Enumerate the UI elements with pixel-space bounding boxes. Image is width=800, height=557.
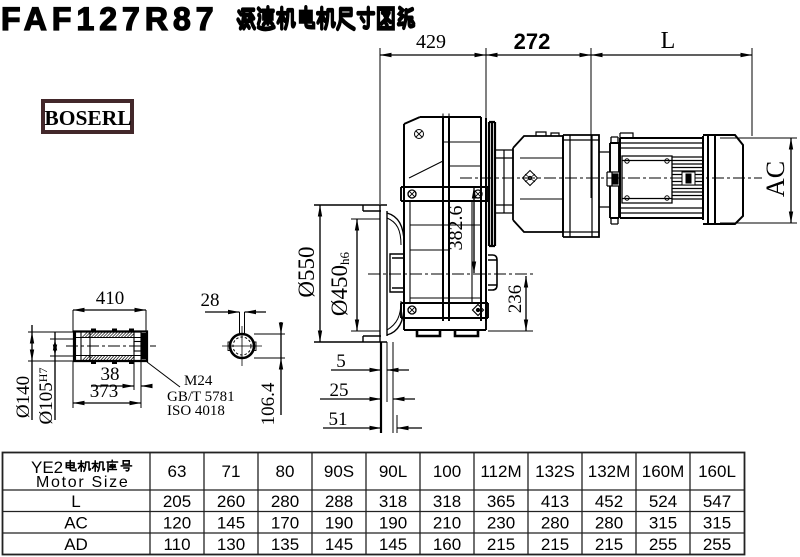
svg-text:215: 215 bbox=[541, 535, 569, 554]
svg-text:160L: 160L bbox=[698, 462, 736, 481]
svg-text:ISO 4018: ISO 4018 bbox=[167, 403, 225, 419]
svg-text:160: 160 bbox=[433, 535, 461, 554]
svg-text:373: 373 bbox=[90, 381, 119, 402]
svg-text:170: 170 bbox=[271, 514, 299, 533]
svg-text:215: 215 bbox=[487, 535, 515, 554]
svg-text:120: 120 bbox=[163, 514, 191, 533]
svg-text:BOSERL: BOSERL bbox=[44, 106, 131, 130]
svg-text:Motor Size: Motor Size bbox=[36, 474, 129, 491]
svg-text:547: 547 bbox=[703, 492, 731, 511]
svg-text:130: 130 bbox=[217, 535, 245, 554]
svg-text:145: 145 bbox=[325, 535, 353, 554]
svg-text:132M: 132M bbox=[588, 462, 631, 481]
svg-text:255: 255 bbox=[649, 535, 677, 554]
svg-text:190: 190 bbox=[379, 514, 407, 533]
svg-text:429: 429 bbox=[416, 31, 446, 53]
svg-text:145: 145 bbox=[217, 514, 245, 533]
svg-text:80: 80 bbox=[276, 462, 295, 481]
svg-text:AC: AC bbox=[64, 514, 88, 533]
svg-text:110: 110 bbox=[163, 535, 190, 554]
svg-text:160M: 160M bbox=[642, 462, 685, 481]
svg-text:280: 280 bbox=[271, 492, 299, 511]
svg-text:63: 63 bbox=[168, 462, 187, 481]
svg-text:410: 410 bbox=[96, 288, 125, 309]
svg-text:452: 452 bbox=[595, 492, 623, 511]
svg-text:280: 280 bbox=[541, 514, 569, 533]
svg-text:FAF127R87: FAF127R87 bbox=[1, 1, 219, 37]
svg-text:280: 280 bbox=[595, 514, 623, 533]
svg-text:255: 255 bbox=[703, 535, 731, 554]
svg-text:205: 205 bbox=[163, 492, 191, 511]
svg-text:318: 318 bbox=[433, 492, 461, 511]
svg-text:M24: M24 bbox=[184, 373, 213, 389]
svg-text:135: 135 bbox=[271, 535, 299, 554]
svg-text:90L: 90L bbox=[379, 462, 407, 481]
svg-text:90S: 90S bbox=[324, 462, 354, 481]
svg-text:L: L bbox=[71, 492, 80, 511]
svg-text:318: 318 bbox=[379, 492, 407, 511]
svg-text:315: 315 bbox=[703, 514, 731, 533]
svg-text:71: 71 bbox=[222, 462, 241, 481]
svg-text:315: 315 bbox=[649, 514, 677, 533]
svg-text:Ø140: Ø140 bbox=[13, 376, 34, 418]
svg-text:132S: 132S bbox=[535, 462, 575, 481]
svg-text:365: 365 bbox=[487, 492, 515, 511]
svg-text:236: 236 bbox=[505, 285, 526, 314]
svg-text:145: 145 bbox=[379, 535, 407, 554]
svg-text:51: 51 bbox=[329, 409, 348, 430]
svg-text:260: 260 bbox=[217, 492, 245, 511]
svg-text:106.4: 106.4 bbox=[258, 382, 279, 425]
svg-text:100: 100 bbox=[433, 462, 461, 481]
svg-text:210: 210 bbox=[433, 514, 461, 533]
svg-text:288: 288 bbox=[325, 492, 353, 511]
svg-text:272: 272 bbox=[514, 29, 551, 54]
svg-text:215: 215 bbox=[595, 535, 623, 554]
svg-text:L: L bbox=[661, 28, 676, 54]
svg-text:28: 28 bbox=[201, 290, 220, 311]
svg-text:AD: AD bbox=[64, 535, 88, 554]
svg-text:190: 190 bbox=[325, 514, 353, 533]
svg-text:112M: 112M bbox=[480, 462, 521, 481]
svg-text:AC: AC bbox=[761, 161, 790, 197]
svg-text:5: 5 bbox=[336, 351, 346, 372]
svg-text:413: 413 bbox=[541, 492, 569, 511]
svg-text:524: 524 bbox=[649, 492, 677, 511]
svg-text:25: 25 bbox=[330, 380, 349, 401]
svg-text:Ø550: Ø550 bbox=[294, 246, 319, 297]
svg-text:382.6: 382.6 bbox=[445, 206, 467, 251]
svg-text:230: 230 bbox=[487, 514, 515, 533]
